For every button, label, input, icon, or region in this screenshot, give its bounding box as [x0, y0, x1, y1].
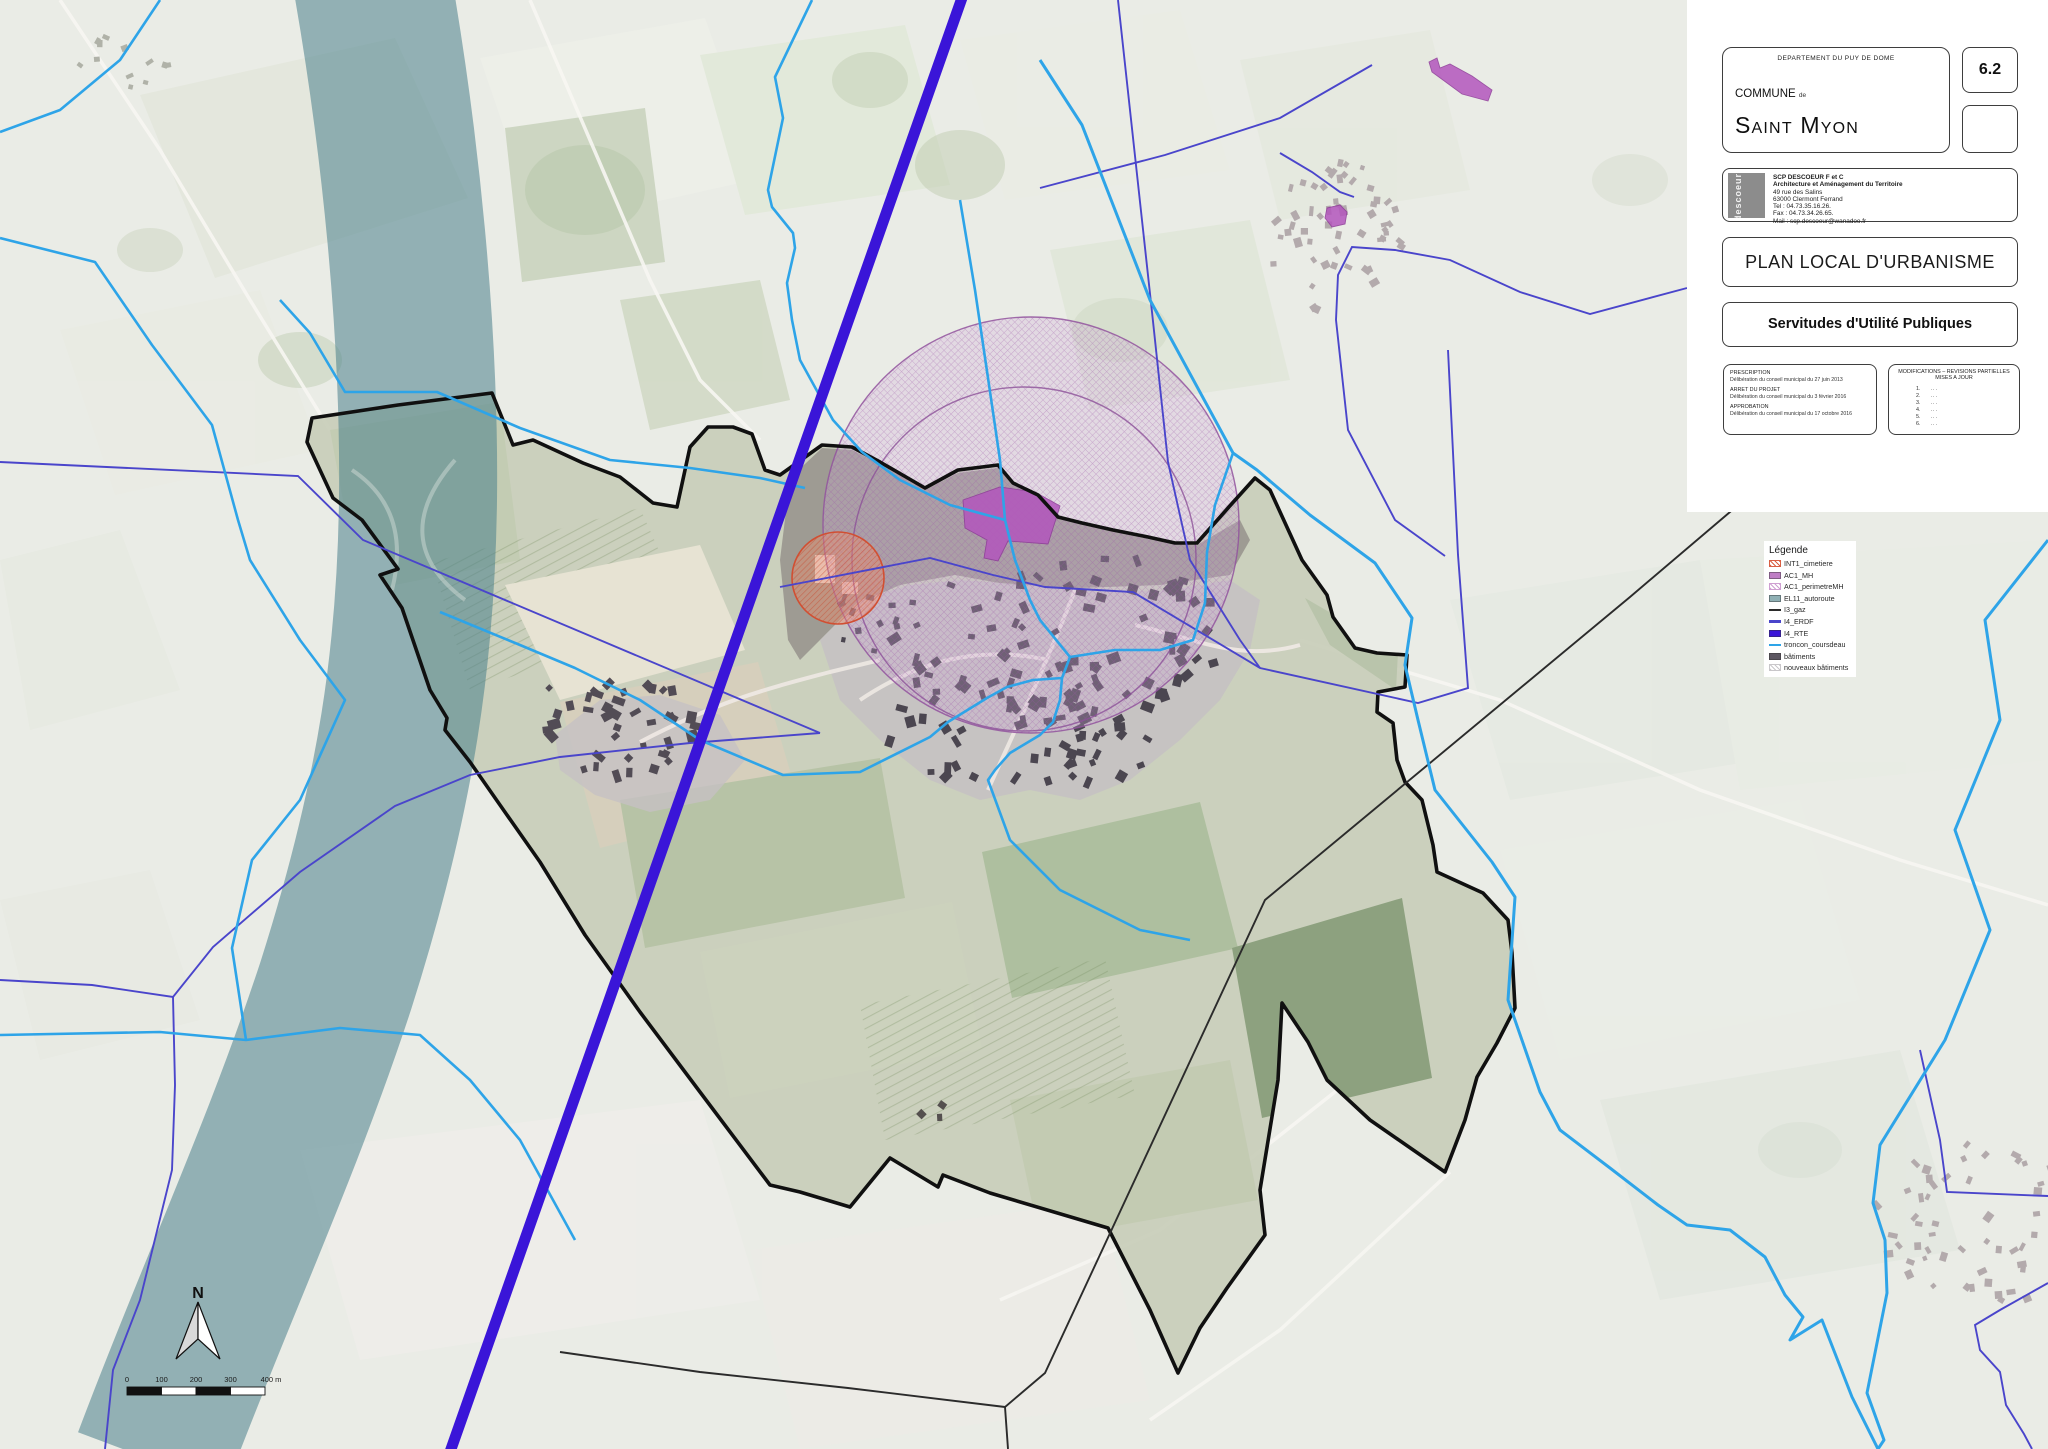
legend-swatch-line	[1769, 618, 1781, 625]
legend-label: AC1_perimetreMH	[1784, 582, 1844, 591]
scale-tick-label: 0	[125, 1375, 129, 1384]
building	[919, 713, 927, 724]
legend-title: Légende	[1769, 545, 1851, 556]
building	[2033, 1211, 2040, 1217]
legend-item: troncon_coursdeau	[1769, 640, 1851, 649]
legend-label: AC1_MH	[1784, 571, 1813, 580]
legend-items: INT1_cimetiereAC1_MHAC1_perimetreMHEL11_…	[1769, 559, 1851, 672]
modification-item: 4....	[1916, 407, 2014, 414]
building	[1969, 1284, 1975, 1292]
building	[944, 762, 951, 774]
legend-item: INT1_cimetiere	[1769, 559, 1851, 568]
svg-text:N: N	[192, 1285, 204, 1302]
document-title: PLAN LOCAL D'URBANISME	[1723, 238, 2017, 286]
modification-item: 1....	[1916, 386, 2014, 393]
building	[667, 685, 677, 696]
legend-line-sample	[1769, 644, 1781, 646]
building	[1301, 228, 1308, 235]
modification-item: 3....	[1916, 400, 2014, 407]
building	[2031, 1231, 2038, 1238]
building	[1914, 1242, 1921, 1250]
legend-label: I3_gaz	[1784, 605, 1806, 614]
plan-number: 6.2	[1963, 48, 2017, 92]
legend-item: I3_gaz	[1769, 605, 1851, 614]
map-sheet: N 0100200300400 m DEPARTEMENT DU PUY DE …	[0, 0, 2048, 1449]
modification-item: 2....	[1916, 393, 2014, 400]
legend-line-sample	[1769, 609, 1781, 611]
scale-tick-label: 300	[224, 1375, 237, 1384]
building	[928, 769, 935, 775]
building	[2033, 1187, 2042, 1195]
legend-item: I4_ERDF	[1769, 617, 1851, 626]
commune-label: COMMUNE de	[1735, 88, 1806, 100]
scale-tick-label: 200	[190, 1375, 203, 1384]
legend-label: EL11_autoroute	[1784, 594, 1835, 603]
department-label: DEPARTEMENT DU PUY DE DOME	[1723, 55, 1949, 62]
map-legend: Légende INT1_cimetiereAC1_MHAC1_perimetr…	[1764, 541, 1856, 677]
legend-swatch-solid	[1769, 595, 1781, 602]
legend-swatch-hatch	[1769, 664, 1781, 671]
scale-bar-segment	[127, 1387, 162, 1395]
empty-box	[1962, 105, 2018, 153]
document-subtitle: Servitudes d'Utilité Publiques	[1723, 303, 2017, 346]
document-title-box: PLAN LOCAL D'URBANISME	[1722, 237, 2018, 287]
building	[1307, 238, 1313, 244]
scale-tick-label: 100	[155, 1375, 168, 1384]
building	[1984, 1278, 1992, 1287]
legend-label: bâtiments	[1784, 652, 1815, 661]
modifications-list: 1....2....3....4....5....6....	[1894, 386, 2014, 428]
legend-swatch-solid	[1769, 572, 1781, 579]
building	[593, 762, 599, 771]
plan-number-box: 6.2	[1962, 47, 2018, 93]
building	[1336, 174, 1343, 183]
building	[626, 768, 633, 778]
building	[1270, 261, 1276, 267]
modification-item: 6....	[1916, 421, 2014, 428]
legend-swatch-solid	[1769, 653, 1781, 660]
modification-item: 5....	[1916, 414, 2014, 421]
building	[1284, 229, 1291, 237]
building	[1044, 747, 1051, 757]
prescription-box: PRESCRIPTION Délibération du conseil mun…	[1723, 364, 1877, 435]
firm-box: descoeur SCP DESCOEUR F et C Architectur…	[1722, 168, 2018, 222]
title-panel: DEPARTEMENT DU PUY DE DOME COMMUNE de Sa…	[1687, 0, 2048, 512]
legend-swatch-line	[1769, 641, 1781, 648]
scale-tick-label: 400 m	[261, 1375, 282, 1384]
building	[1030, 753, 1039, 763]
building	[1333, 198, 1339, 205]
legend-item: AC1_MH	[1769, 571, 1851, 580]
building	[937, 1114, 942, 1121]
building	[1995, 1246, 2002, 1254]
legend-label: INT1_cimetiere	[1784, 559, 1833, 568]
legend-label: I4_RTE	[1784, 629, 1808, 638]
legend-label: I4_ERDF	[1784, 617, 1814, 626]
document-subtitle-box: Servitudes d'Utilité Publiques	[1722, 302, 2018, 347]
legend-item: EL11_autoroute	[1769, 594, 1851, 603]
commune-name: Saint Myon	[1735, 112, 1859, 139]
building	[1278, 234, 1284, 239]
legend-item: bâtiments	[1769, 652, 1851, 661]
scale-bar-segment	[162, 1387, 197, 1395]
legend-swatch-hatch	[1769, 560, 1781, 567]
building	[94, 57, 100, 62]
legend-label: troncon_coursdeau	[1784, 640, 1846, 649]
building	[1114, 722, 1126, 731]
scale-bar-segment	[231, 1387, 266, 1395]
legend-item: nouveaux bâtiments	[1769, 663, 1851, 672]
modifications-box: MODIFICATIONS – REVISIONS PARTIELLES MIS…	[1888, 364, 2020, 435]
legend-swatch-solid	[1769, 630, 1781, 637]
legend-swatch-hatch	[1769, 583, 1781, 590]
firm-logo: descoeur	[1728, 173, 1765, 218]
cimetiere-circle	[792, 532, 884, 624]
legend-item: AC1_perimetreMH	[1769, 582, 1851, 591]
commune-title-box: DEPARTEMENT DU PUY DE DOME COMMUNE de Sa…	[1722, 47, 1950, 153]
building	[1377, 237, 1386, 242]
legend-item: I4_RTE	[1769, 629, 1851, 638]
building	[1309, 206, 1314, 216]
legend-label: nouveaux bâtiments	[1784, 663, 1848, 672]
scale-bar-segment	[196, 1387, 231, 1395]
legend-line-sample	[1769, 620, 1781, 622]
firm-name: SCP DESCOEUR F et C	[1773, 174, 1903, 181]
building	[2020, 1266, 2026, 1273]
legend-swatch-line	[1769, 606, 1781, 613]
firm-details: SCP DESCOEUR F et C Architecture et Amén…	[1773, 174, 1903, 225]
